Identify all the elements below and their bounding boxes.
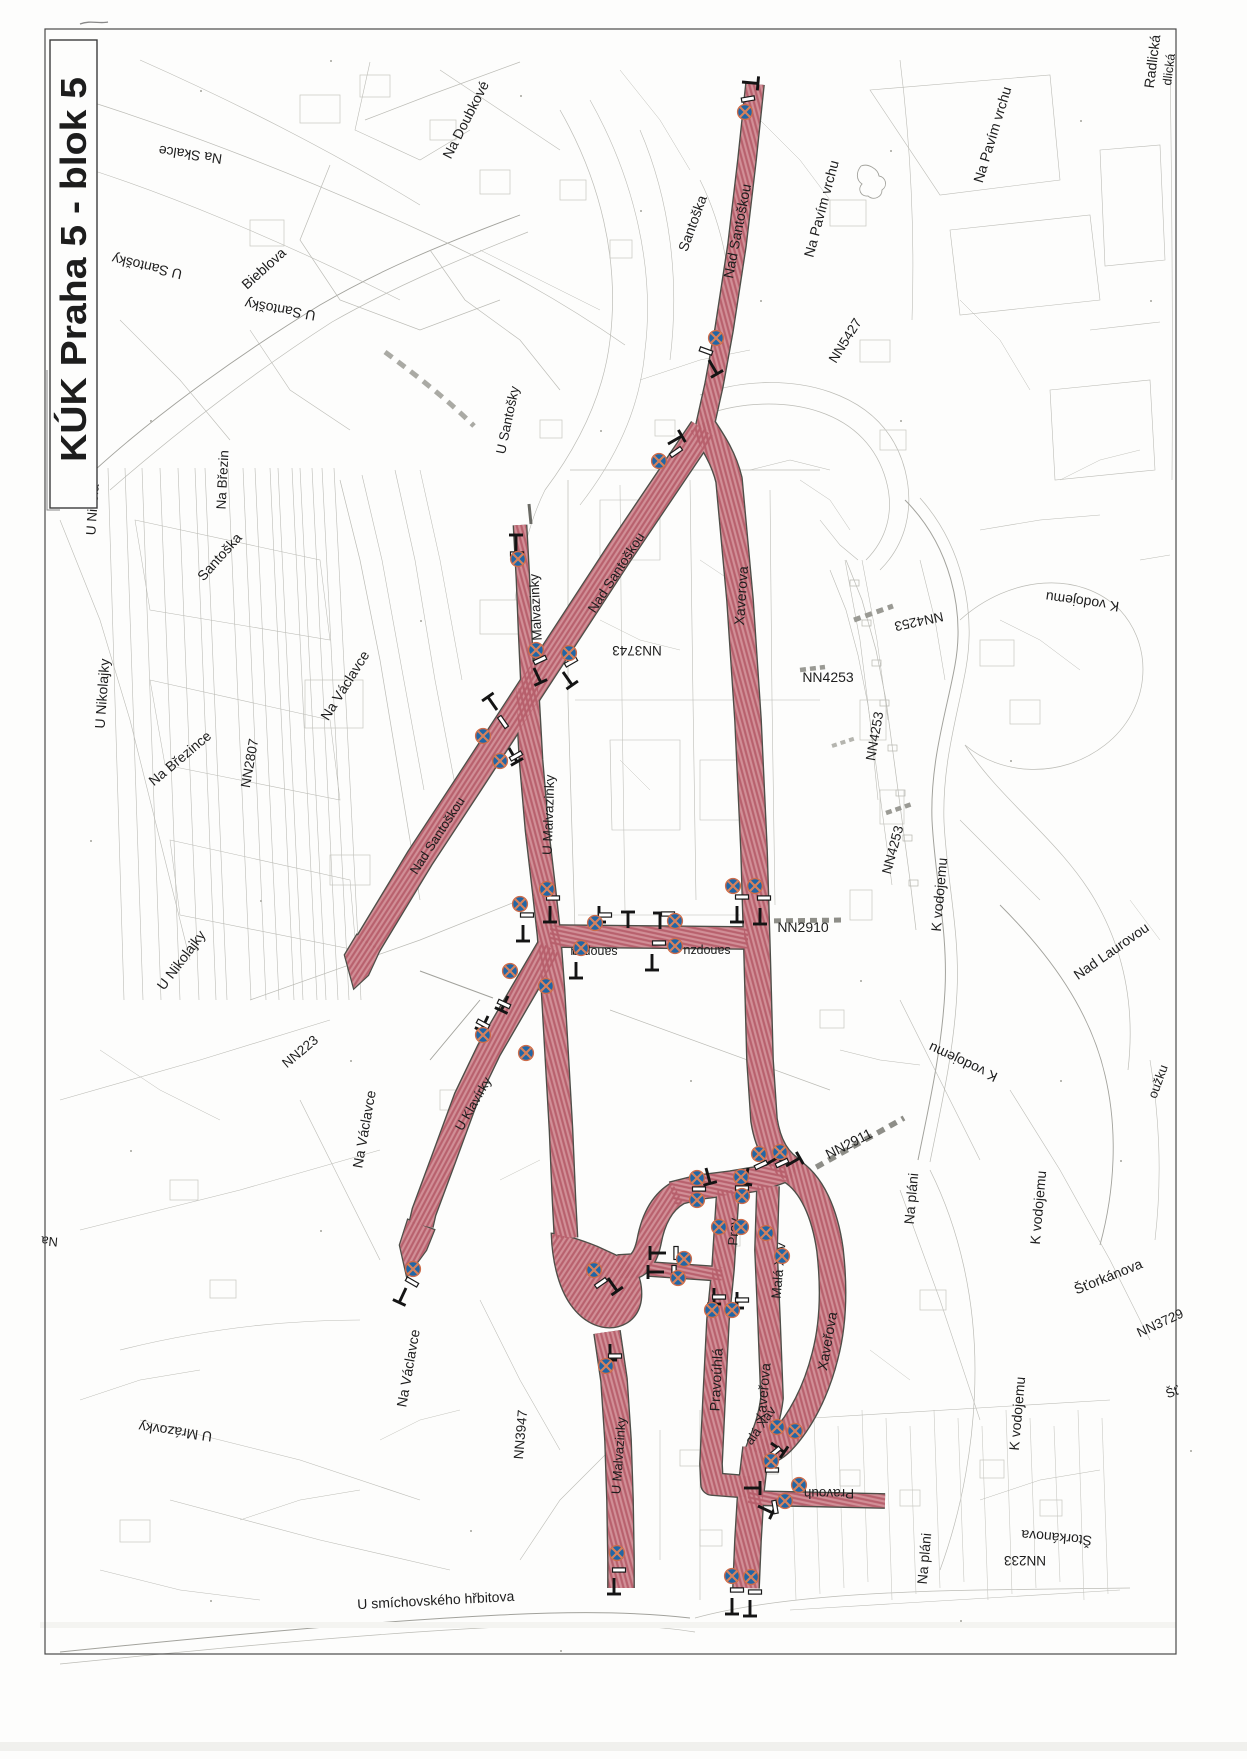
svg-text:Na Březin: Na Březin bbox=[213, 450, 231, 510]
svg-text:NN233: NN233 bbox=[1004, 1553, 1046, 1568]
svg-text:Pravouh: Pravouh bbox=[804, 1486, 854, 1501]
svg-text:Na: Na bbox=[40, 1233, 59, 1249]
svg-text:NN3743: NN3743 bbox=[612, 643, 662, 658]
svg-text:U Malvazinky: U Malvazinky bbox=[540, 774, 558, 855]
svg-text:sanopzu: sanopzu bbox=[683, 944, 730, 958]
svg-text:Pravoúhlá: Pravoúhlá bbox=[706, 1348, 725, 1412]
svg-text:KÚK Praha 5 - blok 5: KÚK Praha 5 - blok 5 bbox=[52, 77, 94, 462]
svg-text:NN4253: NN4253 bbox=[802, 669, 854, 685]
svg-text:NN2910: NN2910 bbox=[777, 919, 829, 935]
